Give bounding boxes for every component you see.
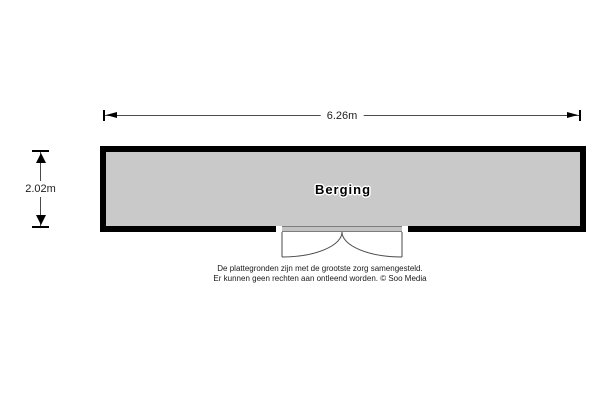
room-berging: Berging: [100, 146, 586, 232]
height-dimension-top-endcap: [32, 150, 49, 152]
disclaimer-line-1: De plattegronden zijn met de grootste zo…: [120, 264, 520, 274]
double-swing-door-icon: [270, 231, 415, 263]
disclaimer: De plattegronden zijn met de grootste zo…: [120, 264, 520, 283]
room-label: Berging: [315, 182, 371, 197]
height-dimension-label: 2.02m: [23, 181, 58, 197]
arrow-right-icon: [567, 112, 578, 118]
height-dimension-bottom-endcap: [32, 226, 49, 228]
floor-plan-canvas: 6.26m 2.02m Berging De plattegronden zij…: [0, 0, 600, 400]
width-dimension-label: 6.26m: [321, 110, 364, 122]
width-dimension: 6.26m: [103, 109, 581, 123]
arrow-left-icon: [106, 112, 117, 118]
width-dimension-left-endcap: [103, 110, 105, 121]
height-dimension: 2.02m: [34, 150, 48, 228]
arrow-down-icon: [36, 215, 46, 225]
width-dimension-right-endcap: [579, 110, 581, 121]
arrow-up-icon: [36, 153, 46, 163]
disclaimer-line-2: Er kunnen geen rechten aan ontleend word…: [120, 274, 520, 284]
